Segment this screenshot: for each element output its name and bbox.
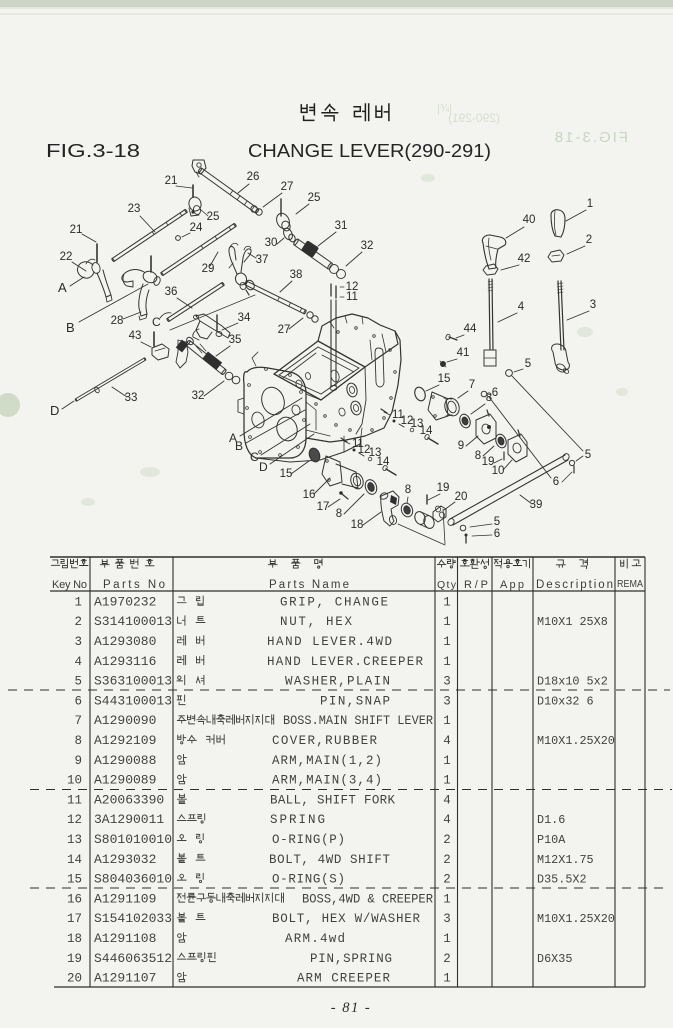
svg-text:4: 4 [74, 655, 82, 669]
svg-text:PIN,SPRING: PIN,SPRING [310, 952, 392, 966]
svg-text:D: D [50, 403, 59, 418]
svg-text:3: 3 [74, 635, 82, 649]
svg-text:A1291108: A1291108 [94, 931, 156, 946]
svg-text:S363100013: S363100013 [94, 674, 172, 689]
svg-text:11: 11 [346, 291, 358, 303]
svg-text:PIN,SNAP: PIN,SNAP [320, 694, 390, 708]
svg-text:32: 32 [361, 240, 374, 252]
svg-text:A1293116: A1293116 [94, 654, 156, 669]
svg-text:19: 19 [67, 952, 82, 966]
svg-text:D18x10 5x2: D18x10 5x2 [537, 675, 608, 689]
svg-text:39: 39 [530, 499, 543, 511]
svg-text:App: App [500, 579, 524, 591]
svg-text:17: 17 [317, 501, 330, 513]
svg-text:21: 21 [165, 175, 178, 187]
svg-text:9: 9 [74, 754, 82, 768]
svg-text:32: 32 [192, 390, 205, 402]
svg-text:A1293032: A1293032 [94, 852, 156, 867]
svg-text:26: 26 [247, 171, 260, 183]
svg-text:6: 6 [74, 694, 82, 708]
svg-text:4: 4 [518, 301, 525, 313]
svg-text:FIG.3-18: FIG.3-18 [553, 129, 628, 146]
svg-text:9: 9 [458, 440, 464, 452]
svg-text:A: A [58, 280, 67, 295]
svg-text:1: 1 [443, 932, 451, 946]
svg-text:O-RING(S): O-RING(S) [272, 873, 345, 887]
svg-text:S314100013: S314100013 [94, 614, 172, 629]
svg-text:|¾|: |¾| [437, 103, 452, 115]
svg-text:18: 18 [67, 932, 82, 946]
svg-text:2: 2 [586, 234, 592, 246]
svg-text:6: 6 [494, 528, 500, 540]
svg-text:8: 8 [486, 392, 492, 404]
svg-text:ARM CREEPER: ARM CREEPER [297, 972, 390, 986]
svg-text:8: 8 [336, 508, 342, 520]
svg-text:5: 5 [525, 358, 531, 370]
svg-text:C: C [250, 450, 259, 464]
svg-text:5: 5 [74, 675, 82, 689]
svg-text:20: 20 [455, 491, 468, 503]
svg-text:A1290088: A1290088 [94, 753, 156, 768]
svg-text:12: 12 [67, 813, 82, 827]
svg-text:1: 1 [443, 635, 451, 649]
svg-text:2: 2 [443, 853, 451, 867]
svg-text:A20063390: A20063390 [94, 792, 164, 807]
svg-text:M10X1.25X20: M10X1.25X20 [537, 734, 615, 748]
svg-text:A1292109: A1292109 [94, 733, 156, 748]
svg-text:15: 15 [67, 873, 82, 887]
svg-text:24: 24 [190, 222, 203, 234]
svg-text:11: 11 [67, 793, 82, 807]
svg-text:40: 40 [523, 214, 536, 226]
svg-text:CHANGE LEVER(290-291): CHANGE LEVER(290-291) [248, 141, 491, 161]
svg-text:8: 8 [74, 734, 82, 748]
svg-text:D6X35: D6X35 [537, 952, 572, 966]
svg-text:8: 8 [405, 484, 411, 496]
svg-text:BALL, SHIFT FORK: BALL, SHIFT FORK [270, 793, 395, 807]
svg-text:7: 7 [74, 714, 82, 728]
svg-text:1: 1 [443, 615, 451, 629]
svg-text:31: 31 [335, 220, 348, 232]
svg-text:20: 20 [67, 972, 82, 986]
svg-text:R/P: R/P [464, 579, 488, 591]
svg-text:M10X1.25X20: M10X1.25X20 [537, 912, 615, 926]
svg-text:A1290089: A1290089 [94, 773, 156, 788]
svg-text:13: 13 [67, 833, 82, 847]
svg-text:2: 2 [443, 873, 451, 887]
svg-text:22: 22 [60, 251, 73, 263]
svg-text:B: B [235, 439, 243, 453]
svg-text:P10A: P10A [537, 833, 566, 847]
svg-text:S154102033: S154102033 [94, 911, 172, 926]
svg-text:HAND LEVER.CREEPER: HAND LEVER.CREEPER [267, 655, 423, 669]
svg-text:15: 15 [280, 468, 293, 480]
svg-text:4: 4 [443, 813, 451, 827]
svg-text:1: 1 [443, 774, 451, 788]
svg-text:2: 2 [443, 833, 451, 847]
svg-text:38: 38 [290, 269, 303, 281]
svg-text:REMA: REMA [617, 579, 643, 590]
svg-text:C: C [152, 315, 161, 329]
svg-text:17: 17 [67, 912, 82, 926]
svg-text:29: 29 [202, 263, 215, 275]
svg-text:8: 8 [475, 450, 481, 462]
svg-text:D1.6: D1.6 [537, 813, 565, 827]
svg-text:27: 27 [281, 181, 294, 193]
svg-text:A1291109: A1291109 [94, 891, 156, 906]
svg-text:FIG.3-18: FIG.3-18 [46, 141, 140, 161]
svg-text:M12X1.75: M12X1.75 [537, 853, 594, 867]
svg-text:D10x32 6: D10x32 6 [537, 694, 594, 708]
svg-text:15: 15 [438, 373, 451, 385]
svg-text:7: 7 [469, 379, 475, 391]
svg-text:4: 4 [443, 793, 451, 807]
svg-text:25: 25 [207, 211, 220, 223]
svg-text:41: 41 [457, 347, 470, 359]
svg-text:3: 3 [590, 299, 596, 311]
svg-text:10: 10 [492, 465, 505, 477]
svg-text:S446063512: S446063512 [94, 951, 172, 966]
svg-text:3: 3 [443, 912, 451, 926]
svg-text:BOLT, 4WD SHIFT: BOLT, 4WD SHIFT [269, 853, 390, 867]
svg-text:6: 6 [492, 387, 498, 399]
svg-text:3A1290011: 3A1290011 [94, 812, 164, 827]
svg-text:16: 16 [67, 892, 82, 906]
svg-text:A1291107: A1291107 [94, 971, 156, 986]
svg-text:1: 1 [443, 892, 451, 906]
svg-text:WASHER,PLAIN: WASHER,PLAIN [285, 675, 390, 689]
svg-text:18: 18 [351, 519, 364, 531]
svg-text:GRIP, CHANGE: GRIP, CHANGE [280, 595, 388, 609]
svg-text:28: 28 [111, 315, 124, 327]
svg-text:Qty: Qty [437, 579, 457, 591]
svg-text:- 81 -: - 81 - [331, 1000, 371, 1016]
svg-text:D35.5X2: D35.5X2 [537, 873, 587, 887]
svg-text:Key No: Key No [52, 579, 87, 591]
svg-text:BOSS.MAIN SHIFT LEVER: BOSS.MAIN SHIFT LEVER [283, 714, 433, 728]
svg-text:19: 19 [437, 482, 450, 494]
svg-text:1: 1 [443, 972, 451, 986]
svg-text:NUT, HEX: NUT, HEX [280, 615, 352, 629]
svg-text:14: 14 [67, 853, 82, 867]
svg-text:1: 1 [74, 595, 82, 609]
svg-text:Parts Name: Parts Name [269, 579, 349, 591]
svg-text:D: D [259, 460, 268, 474]
svg-text:1: 1 [443, 655, 451, 669]
svg-text:42: 42 [518, 253, 531, 265]
svg-text:44: 44 [464, 323, 477, 335]
svg-text:5: 5 [494, 516, 500, 528]
svg-text:HAND LEVER.4WD: HAND LEVER.4WD [267, 635, 392, 649]
svg-text:43: 43 [129, 330, 142, 342]
svg-text:2: 2 [74, 615, 82, 629]
svg-text:A1970232: A1970232 [94, 594, 156, 609]
svg-text:B: B [66, 320, 75, 335]
svg-text:3: 3 [443, 694, 451, 708]
svg-text:1: 1 [587, 198, 593, 210]
svg-text:S443100013: S443100013 [94, 693, 172, 708]
svg-text:M10X1 25X8: M10X1 25X8 [537, 615, 608, 629]
svg-text:BOLT, HEX W/WASHER: BOLT, HEX W/WASHER [272, 912, 420, 926]
svg-text:ARM,MAIN(3,4): ARM,MAIN(3,4) [272, 774, 382, 788]
svg-text:10: 10 [67, 774, 82, 788]
svg-text:23: 23 [128, 203, 141, 215]
svg-text:1: 1 [443, 595, 451, 609]
svg-text:COVER,RUBBER: COVER,RUBBER [272, 734, 377, 748]
svg-text:35: 35 [229, 334, 242, 346]
svg-text:5: 5 [585, 449, 591, 461]
svg-text:34: 34 [238, 312, 251, 324]
svg-text:A1293080: A1293080 [94, 634, 156, 649]
svg-text:O-RING(P): O-RING(P) [272, 833, 345, 847]
svg-text:6: 6 [553, 476, 559, 488]
svg-text:ARM.4wd: ARM.4wd [285, 932, 345, 946]
svg-text:A1290090: A1290090 [94, 713, 156, 728]
svg-text:27: 27 [278, 324, 291, 336]
svg-text:21: 21 [70, 224, 83, 236]
svg-text:30: 30 [265, 237, 278, 249]
svg-text:(290-291): (290-291) [448, 111, 500, 125]
svg-text:ARM,MAIN(1,2): ARM,MAIN(1,2) [272, 754, 382, 768]
svg-text:1: 1 [443, 754, 451, 768]
svg-text:25: 25 [308, 192, 321, 204]
svg-text:S801010010: S801010010 [94, 832, 172, 847]
svg-text:Parts No: Parts No [103, 579, 165, 591]
svg-text:33: 33 [125, 392, 138, 404]
svg-text:BOSS,4WD & CREEPER: BOSS,4WD & CREEPER [302, 892, 433, 906]
svg-text:4: 4 [443, 734, 451, 748]
svg-text:3: 3 [443, 675, 451, 689]
svg-text:S804036010: S804036010 [94, 872, 172, 887]
svg-text:16: 16 [303, 489, 316, 501]
svg-text:1: 1 [443, 714, 451, 728]
svg-text:2: 2 [443, 952, 451, 966]
svg-text:37: 37 [256, 254, 269, 266]
svg-text:36: 36 [165, 286, 178, 298]
